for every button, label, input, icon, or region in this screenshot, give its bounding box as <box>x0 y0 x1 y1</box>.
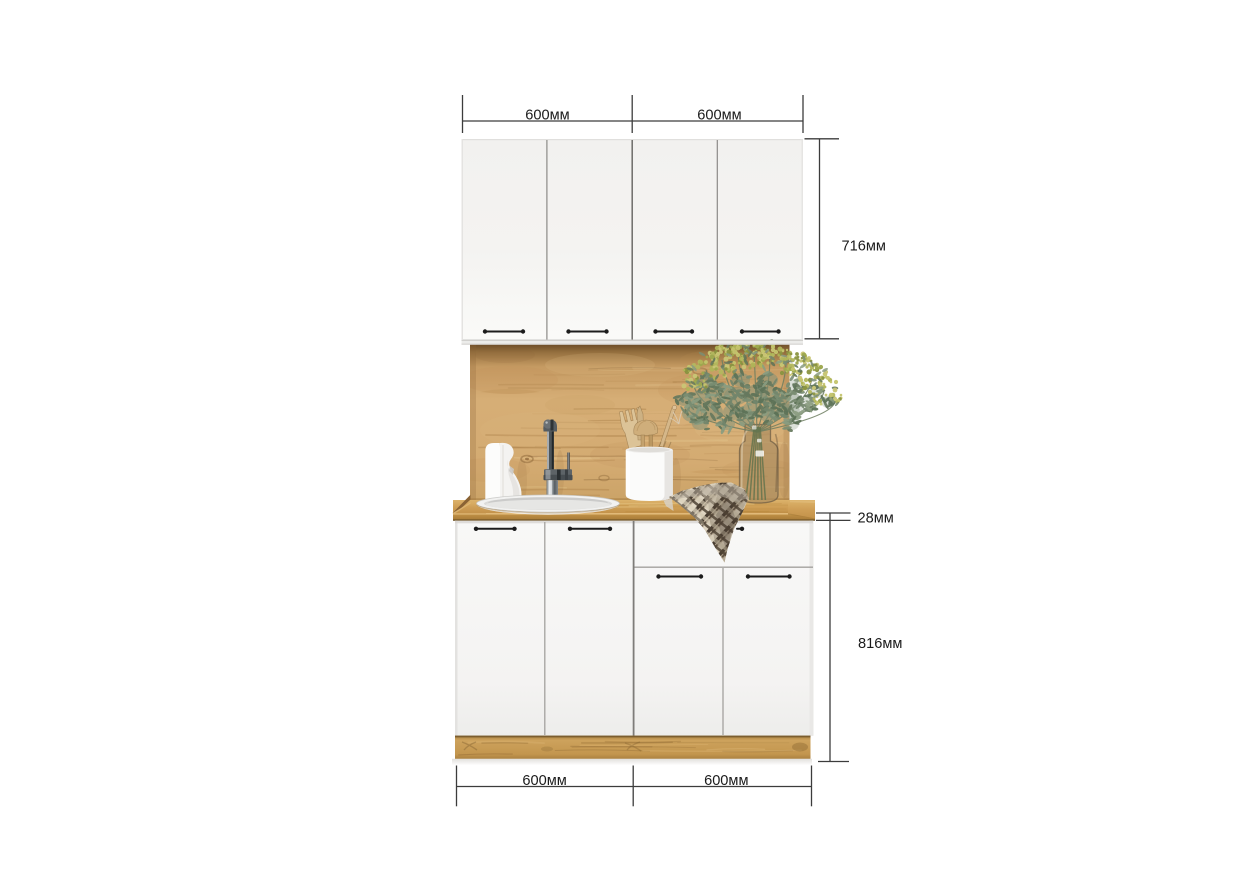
svg-text:716мм: 716мм <box>842 239 886 255</box>
svg-text:816мм: 816мм <box>858 636 902 652</box>
svg-text:600мм: 600мм <box>704 773 748 789</box>
svg-text:28мм: 28мм <box>858 511 894 527</box>
svg-text:600мм: 600мм <box>525 108 569 124</box>
svg-text:600мм: 600мм <box>697 108 741 124</box>
svg-text:600мм: 600мм <box>522 773 566 789</box>
